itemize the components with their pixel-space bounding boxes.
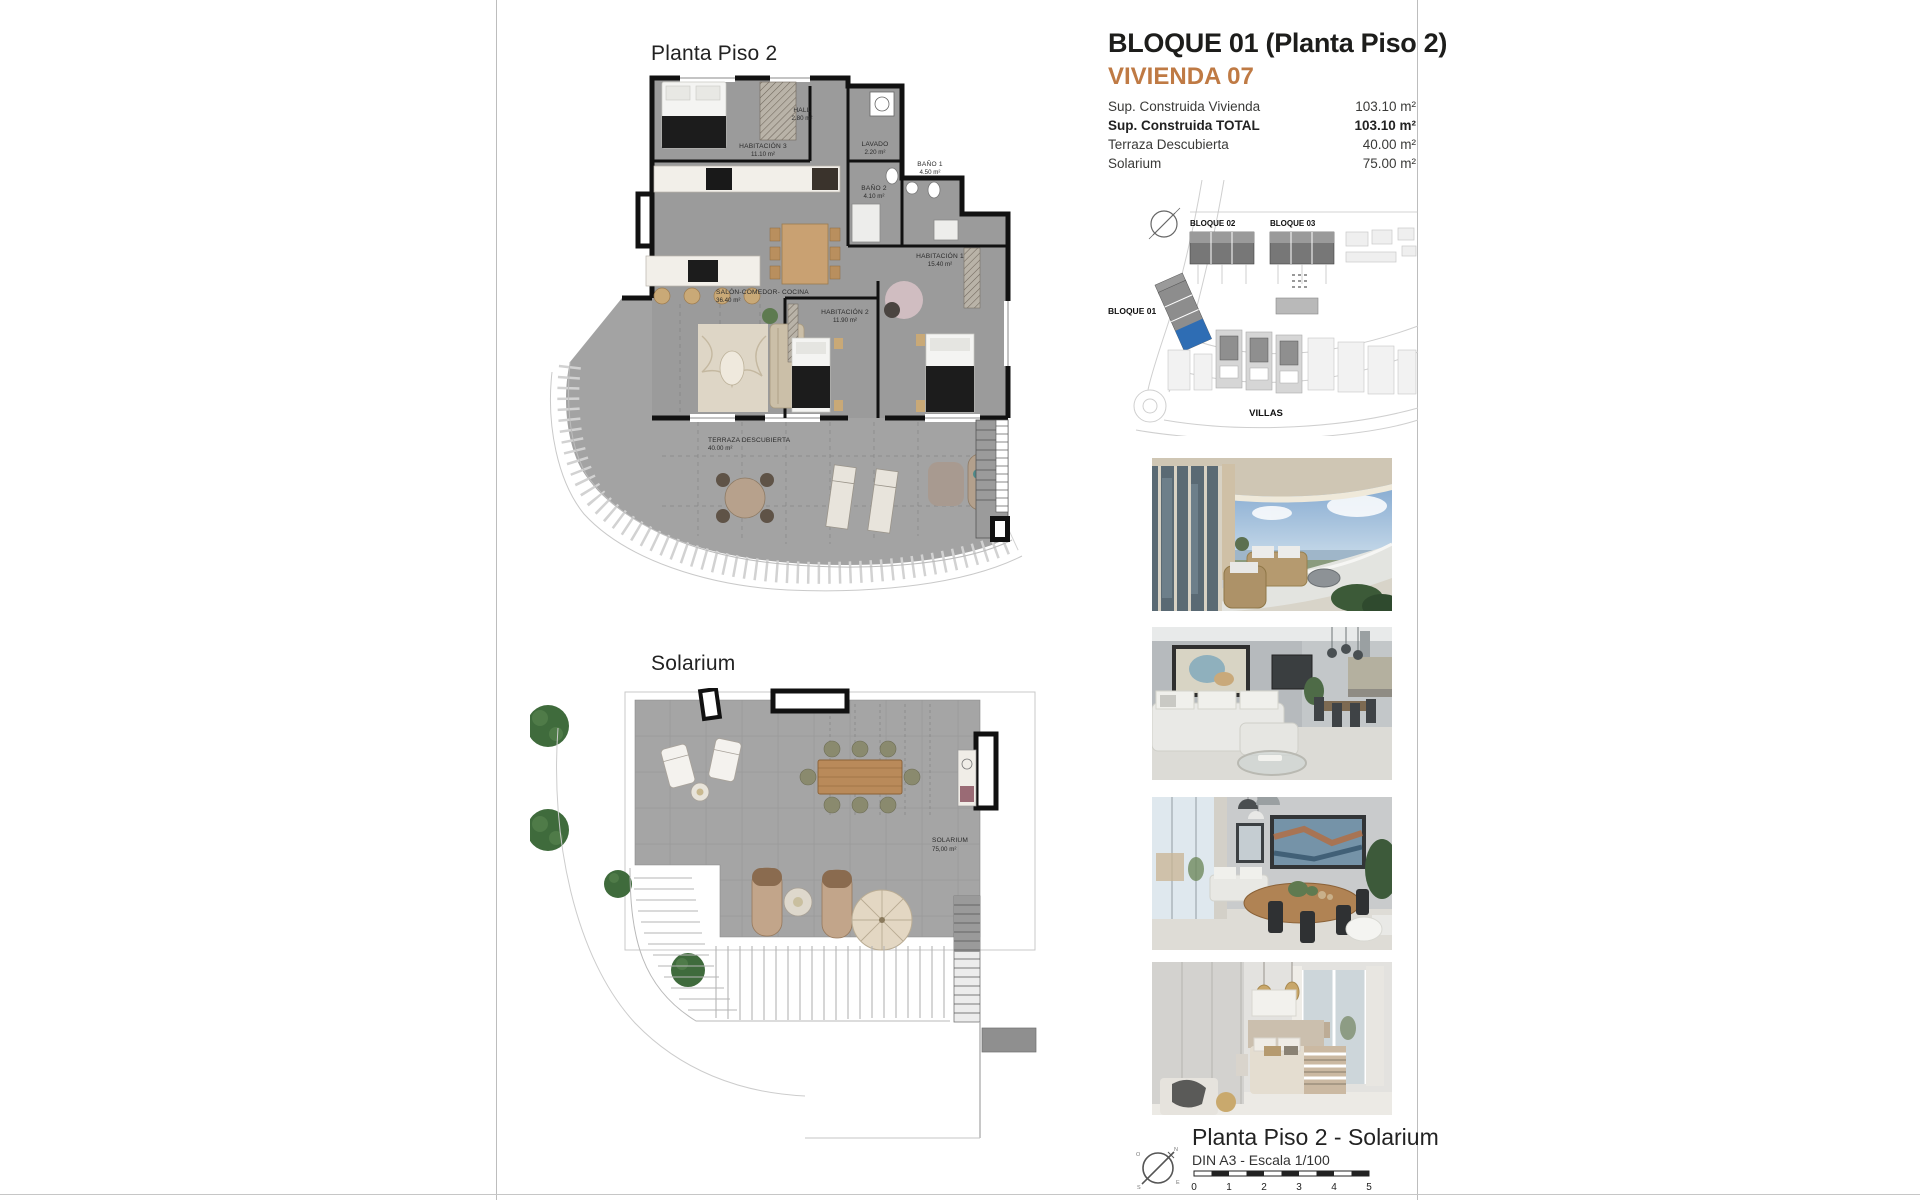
spec-row-vivienda: Sup. Construida Vivienda 103.10 m²: [1108, 97, 1416, 116]
spec-value: 103.10 m²: [1354, 116, 1416, 135]
siteplan-compass-icon: [1149, 208, 1180, 239]
page-border-bottom: [0, 1194, 1920, 1195]
page-border-left: [496, 0, 497, 1200]
siteplan-label-bloque03: BLOQUE 03: [1270, 219, 1316, 228]
scale-tick-4: 4: [1331, 1182, 1337, 1193]
room-area-lavado: 2.20 m²: [865, 149, 886, 156]
spec-label: Sup. Construida TOTAL: [1108, 116, 1260, 135]
spec-value: 40.00 m²: [1363, 135, 1416, 154]
room-area-salon: 36.40 m²: [716, 297, 740, 304]
floorplan-title: Planta Piso 2: [651, 42, 777, 66]
solarium-label: SOLARIUM: [932, 837, 968, 844]
spec-value: 75.00 m²: [1363, 154, 1416, 173]
spec-label: Terraza Descubierta: [1108, 135, 1229, 154]
room-label-bano2: BAÑO 2: [861, 183, 887, 192]
solarium-drawing: SOLARIUM 75,00 m²: [530, 688, 1045, 1153]
compass-letter-n: N: [1174, 1147, 1178, 1153]
spec-table: Sup. Construida Vivienda 103.10 m² Sup. …: [1108, 97, 1416, 173]
footer-scale-bar: 0 1 2 3 4 5: [1188, 1168, 1388, 1196]
living-photo-illustration: [1152, 627, 1392, 780]
spec-row-terraza: Terraza Descubierta 40.00 m²: [1108, 135, 1416, 154]
room-label-bano1: BAÑO 1: [917, 159, 943, 168]
solarium-area: 75,00 m²: [932, 846, 956, 853]
compass-letter-e: E: [1176, 1180, 1180, 1186]
sheet-title: BLOQUE 01 (Planta Piso 2): [1108, 28, 1447, 59]
siteplan-drawing: BLOQUE 02 BLOQUE 03 BLOQUE 01: [1106, 180, 1422, 436]
siteplan-label-villas: VILLAS: [1249, 408, 1283, 419]
room-area-hall: 2.80 m²: [792, 115, 813, 122]
footer-scale-label: DIN A3 - Escala 1/100: [1192, 1152, 1330, 1168]
spec-value: 103.10 m²: [1355, 97, 1416, 116]
terrace-photo-illustration: [1152, 458, 1392, 611]
scale-tick-2: 2: [1261, 1182, 1267, 1193]
room-label-hab2: HABITACIÓN 2: [821, 307, 869, 316]
room-label-salon: SALÓN-COMEDOR- COCINA: [716, 287, 809, 296]
room-area-hab1: 15.40 m²: [928, 261, 952, 268]
spec-label: Solarium: [1108, 154, 1161, 173]
siteplan-label-bloque01: BLOQUE 01: [1108, 306, 1156, 316]
room-label-hall: HALL: [793, 107, 810, 114]
room-label-hab1: HABITACIÓN 1: [916, 251, 964, 260]
spec-label: Sup. Construida Vivienda: [1108, 97, 1260, 116]
photo-terrace: [1152, 458, 1392, 611]
scale-tick-5: 5: [1366, 1182, 1372, 1193]
room-area-bano1: 4.50 m²: [920, 169, 941, 176]
bedroom-photo-illustration: [1152, 962, 1392, 1115]
photo-living-room: [1152, 627, 1392, 780]
dining-photo-illustration: [1152, 797, 1392, 950]
room-area-bano2: 4.10 m²: [864, 193, 885, 200]
scale-tick-0: 0: [1191, 1182, 1197, 1193]
footer-title: Planta Piso 2 - Solarium: [1192, 1124, 1439, 1151]
room-area-hab2: 11.90 m²: [833, 317, 857, 324]
room-area-hab3: 11.10 m²: [751, 151, 775, 158]
floorplan-drawing: HALL 2.80 m² HABITACIÓN 3 11.10 m² LAVAD…: [530, 66, 1045, 611]
solarium-title: Solarium: [651, 652, 735, 676]
photo-bedroom: [1152, 962, 1392, 1115]
room-label-hab3: HABITACIÓN 3: [739, 141, 787, 150]
scale-tick-3: 3: [1296, 1182, 1302, 1193]
spec-row-solarium: Solarium 75.00 m²: [1108, 154, 1416, 173]
compass-letter-o: O: [1136, 1152, 1141, 1158]
spec-row-total: Sup. Construida TOTAL 103.10 m²: [1108, 116, 1416, 135]
siteplan-label-bloque02: BLOQUE 02: [1190, 219, 1236, 228]
footer-compass-icon: N S E O: [1134, 1144, 1182, 1192]
compass-letter-s: S: [1137, 1185, 1141, 1191]
scale-tick-1: 1: [1226, 1182, 1232, 1193]
room-area-terraza: 40.00 m²: [708, 445, 732, 452]
room-label-terraza: TERRAZA DESCUBIERTA: [708, 437, 791, 444]
unit-title: VIVIENDA 07: [1108, 63, 1254, 91]
room-label-lavado: LAVADO: [862, 141, 889, 148]
photo-dining-area: [1152, 797, 1392, 950]
